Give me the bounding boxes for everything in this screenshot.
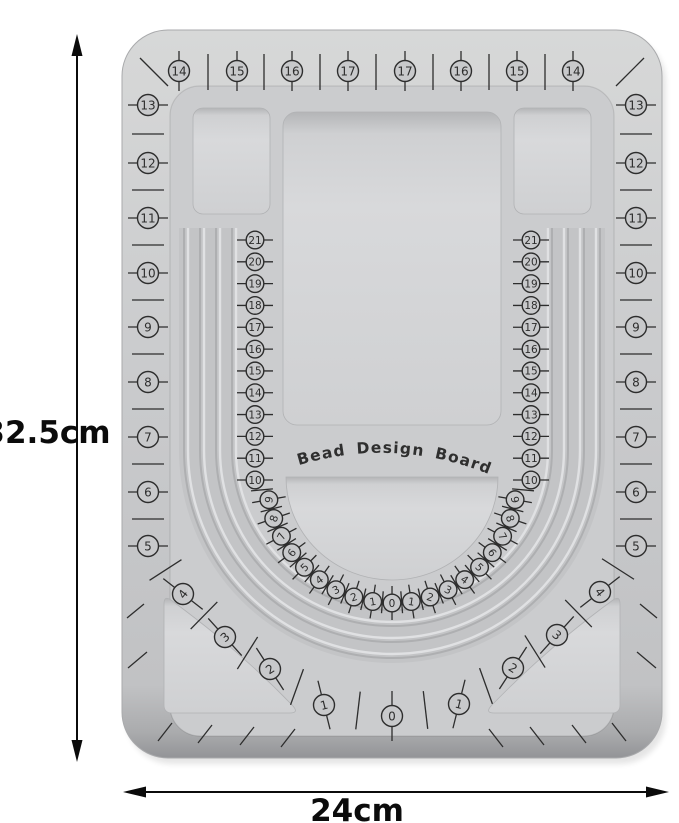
svg-text:15: 15 (509, 64, 524, 78)
svg-text:14: 14 (565, 64, 580, 78)
svg-text:8: 8 (144, 375, 152, 389)
svg-text:17: 17 (397, 64, 412, 78)
svg-text:20: 20 (524, 257, 537, 269)
top-right-compartment (514, 108, 591, 214)
svg-text:0: 0 (388, 709, 396, 723)
svg-text:16: 16 (248, 344, 262, 356)
svg-text:7: 7 (632, 430, 640, 444)
svg-text:8: 8 (632, 375, 640, 389)
height-dimension-label: 32.5cm (0, 415, 111, 451)
svg-text:21: 21 (524, 235, 537, 247)
arrow-left-icon (123, 787, 146, 798)
svg-text:13: 13 (628, 98, 643, 112)
svg-text:9: 9 (144, 320, 152, 334)
svg-text:11: 11 (524, 453, 537, 465)
svg-text:14: 14 (524, 388, 538, 400)
svg-text:17: 17 (340, 64, 355, 78)
svg-text:10: 10 (524, 475, 537, 487)
arrow-down-icon (72, 740, 83, 762)
svg-text:19: 19 (248, 278, 261, 290)
svg-text:10: 10 (140, 266, 155, 280)
svg-text:10: 10 (628, 266, 643, 280)
center-compartment (283, 112, 501, 425)
svg-text:5: 5 (632, 539, 640, 553)
svg-text:16: 16 (453, 64, 468, 78)
svg-text:12: 12 (524, 431, 537, 443)
svg-text:16: 16 (284, 64, 299, 78)
svg-text:5: 5 (144, 539, 152, 553)
svg-text:15: 15 (524, 366, 537, 378)
svg-text:18: 18 (524, 300, 537, 312)
svg-text:11: 11 (140, 211, 155, 225)
svg-text:15: 15 (248, 366, 261, 378)
top-left-compartment (193, 108, 270, 214)
svg-text:11: 11 (248, 453, 261, 465)
svg-text:9: 9 (632, 320, 640, 334)
svg-text:14: 14 (248, 388, 262, 400)
svg-text:6: 6 (632, 485, 640, 499)
svg-text:18: 18 (248, 300, 261, 312)
svg-text:19: 19 (524, 278, 537, 290)
svg-text:11: 11 (628, 211, 643, 225)
svg-text:13: 13 (140, 98, 155, 112)
bead-board-figure: Bead Design Board 1415161717161514131211… (0, 0, 679, 823)
svg-text:16: 16 (524, 344, 538, 356)
svg-text:17: 17 (524, 322, 537, 334)
svg-text:13: 13 (248, 409, 261, 421)
arrow-up-icon (72, 34, 83, 56)
svg-text:17: 17 (248, 322, 261, 334)
svg-text:0: 0 (389, 598, 396, 610)
width-dimension-label: 24cm (310, 793, 404, 823)
svg-text:13: 13 (524, 409, 537, 421)
svg-text:21: 21 (248, 235, 261, 247)
svg-text:12: 12 (628, 156, 643, 170)
svg-text:14: 14 (171, 64, 186, 78)
svg-text:10: 10 (248, 475, 261, 487)
svg-text:6: 6 (144, 485, 152, 499)
svg-text:12: 12 (140, 156, 155, 170)
svg-text:7: 7 (144, 430, 152, 444)
product-image: Bead Design Board 1415161717161514131211… (0, 0, 679, 823)
arrow-right-icon (646, 787, 669, 798)
svg-text:12: 12 (248, 431, 261, 443)
height-dimension-arrow (72, 34, 83, 762)
svg-text:20: 20 (248, 257, 261, 269)
svg-text:15: 15 (229, 64, 244, 78)
